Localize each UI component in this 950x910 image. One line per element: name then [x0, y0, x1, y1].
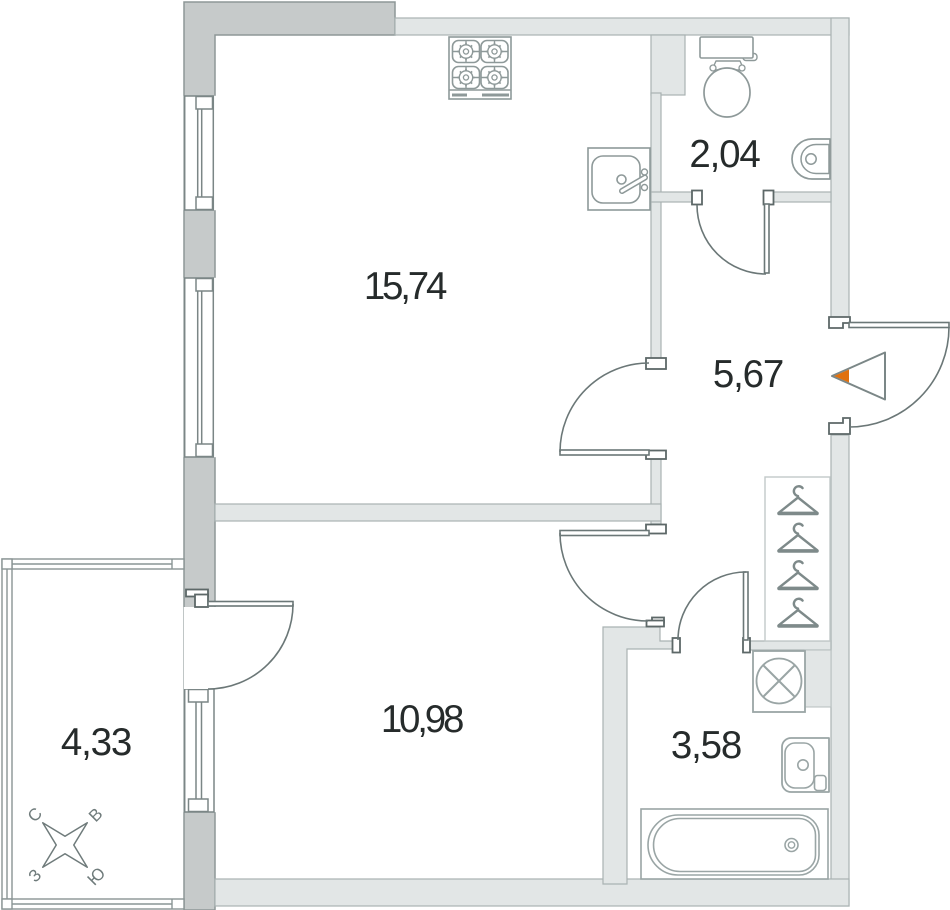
- svg-text:4,33: 4,33: [61, 721, 131, 764]
- svg-text:10,98: 10,98: [381, 698, 463, 741]
- svg-text:2,04: 2,04: [689, 133, 760, 176]
- svg-text:3,58: 3,58: [671, 724, 741, 767]
- svg-text:5,67: 5,67: [713, 353, 783, 396]
- svg-text:15,74: 15,74: [364, 265, 447, 308]
